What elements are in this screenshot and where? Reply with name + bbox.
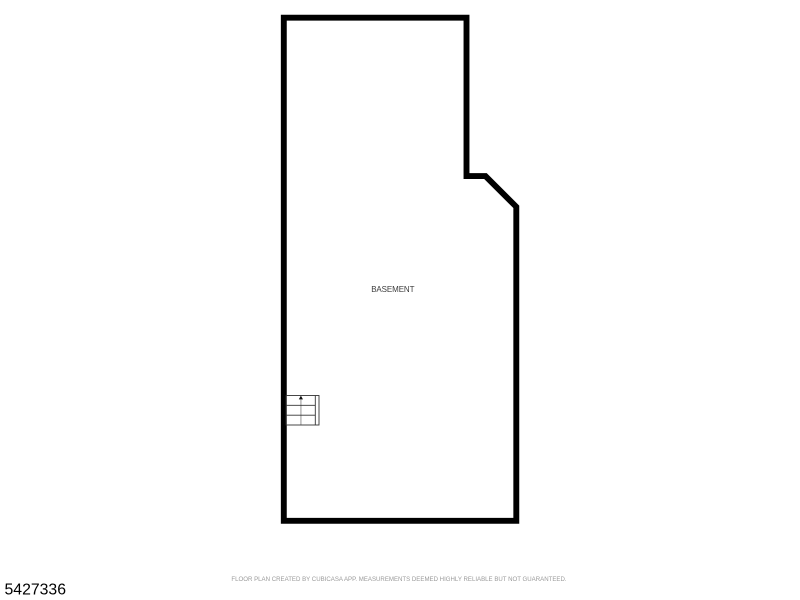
svg-text:5427336: 5427336: [5, 582, 67, 599]
svg-text:BASEMENT: BASEMENT: [371, 285, 414, 294]
svg-text:FLOOR PLAN CREATED BY CUBICASA: FLOOR PLAN CREATED BY CUBICASA APP. MEAS…: [231, 576, 566, 583]
